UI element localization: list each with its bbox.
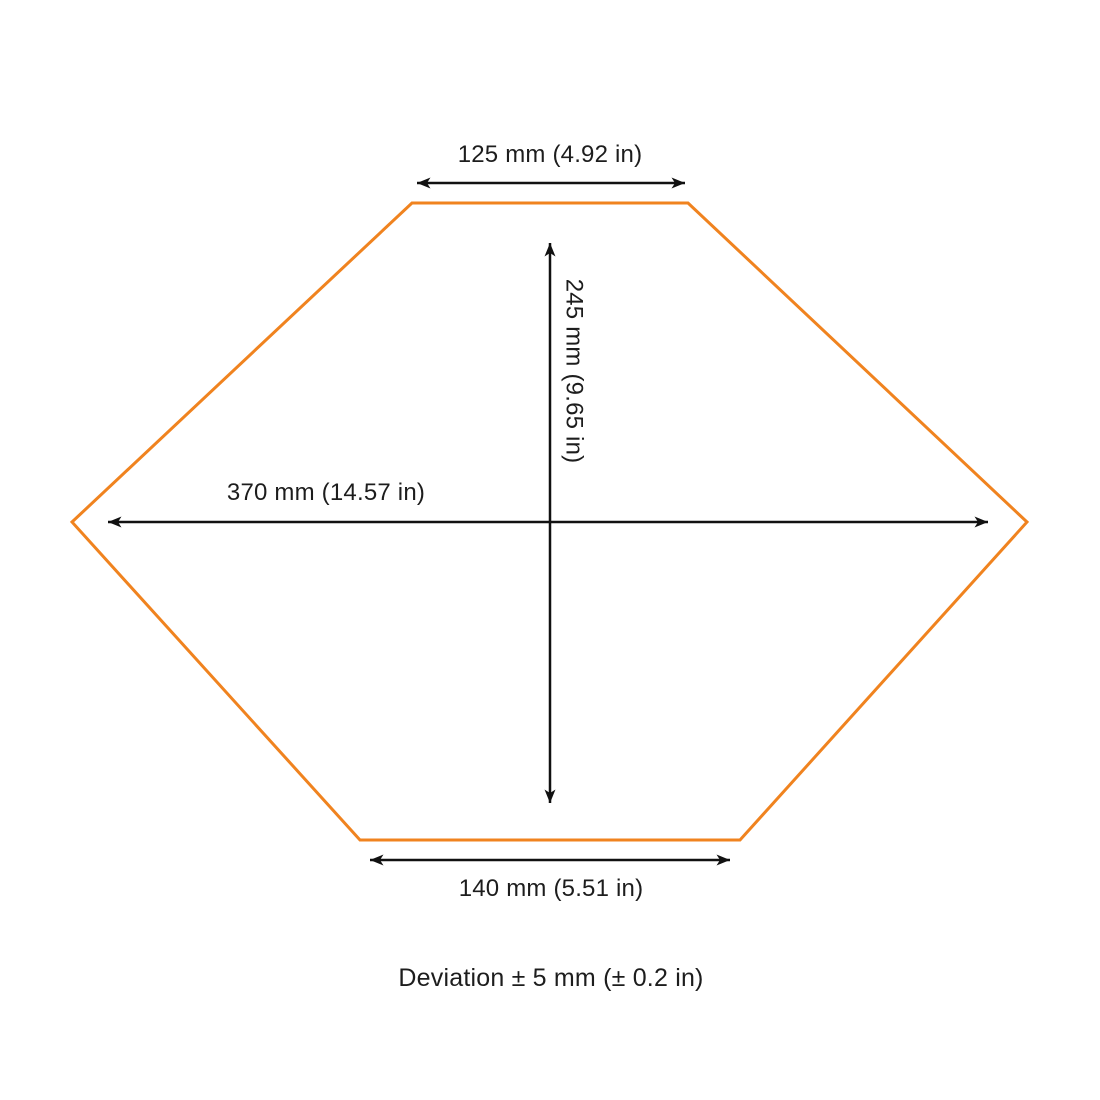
diagram-canvas: 125 mm (4.92 in) 245 mm (9.65 in) 370 mm… xyxy=(0,0,1100,1100)
max-width-label: 370 mm (14.57 in) xyxy=(227,479,425,506)
deviation-note: Deviation ± 5 mm (± 0.2 in) xyxy=(398,964,703,992)
bottom-width-label: 140 mm (5.51 in) xyxy=(459,875,644,902)
hexagon-dimension-diagram: 125 mm (4.92 in) 245 mm (9.65 in) 370 mm… xyxy=(0,0,1100,1100)
height-label: 245 mm (9.65 in) xyxy=(561,279,588,464)
top-width-label: 125 mm (4.92 in) xyxy=(458,141,643,168)
